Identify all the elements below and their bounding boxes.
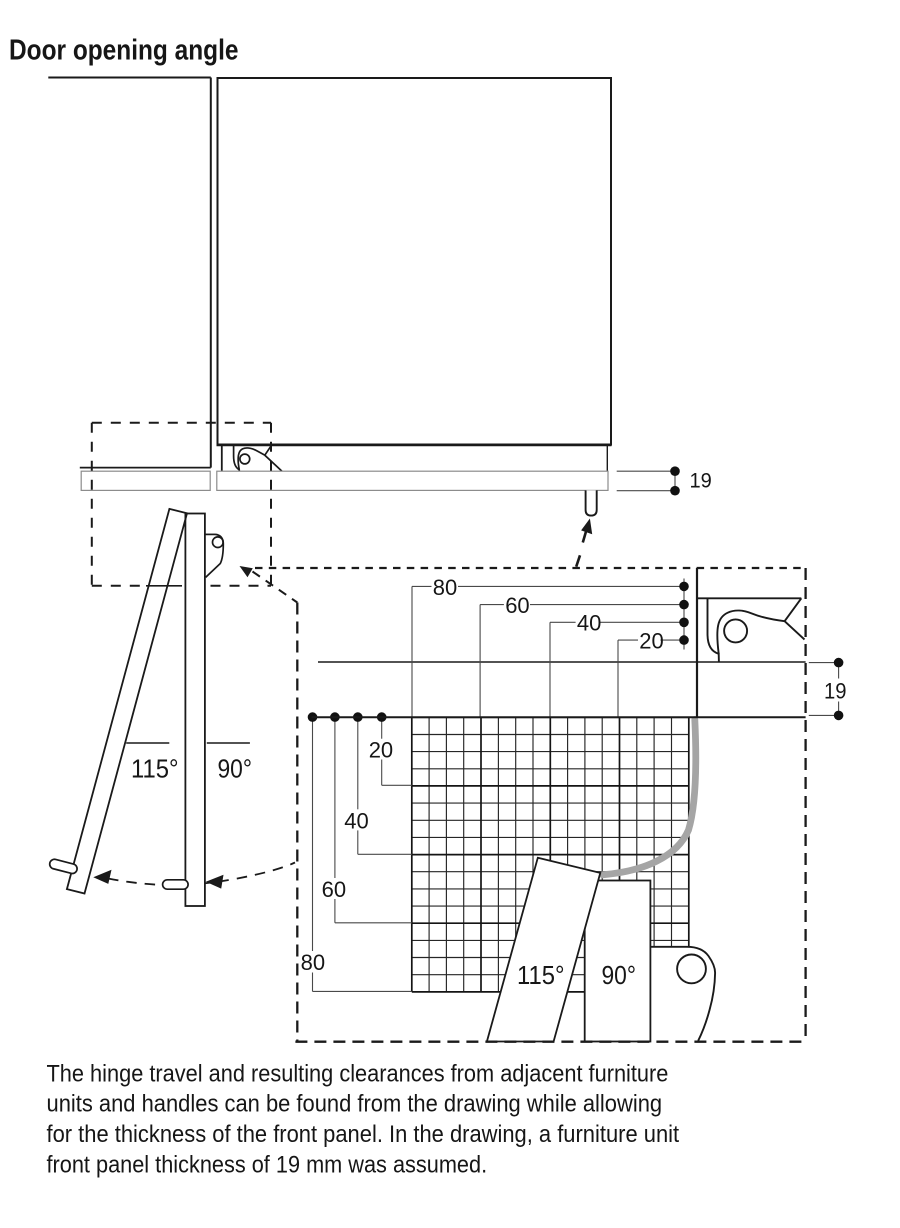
svg-text:60: 60 xyxy=(322,877,346,902)
svg-text:19: 19 xyxy=(690,469,712,492)
svg-text:80: 80 xyxy=(301,950,325,975)
svg-text:20: 20 xyxy=(639,629,663,654)
svg-text:front panel thickness of 19 mm: front panel thickness of 19 mm was assum… xyxy=(47,1151,488,1178)
svg-text:Door opening angle: Door opening angle xyxy=(9,34,239,66)
svg-text:90°: 90° xyxy=(602,960,637,990)
svg-text:40: 40 xyxy=(577,611,601,636)
svg-text:for the thickness of the front: for the thickness of the front panel. In… xyxy=(47,1121,680,1148)
svg-text:units and handles can be found: units and handles can be found from the … xyxy=(47,1091,663,1118)
svg-text:19: 19 xyxy=(824,678,847,703)
svg-text:60: 60 xyxy=(505,593,529,618)
svg-text:80: 80 xyxy=(433,575,457,600)
svg-text:90°: 90° xyxy=(218,754,253,784)
svg-text:115°: 115° xyxy=(517,960,565,990)
svg-text:The hinge travel and resulting: The hinge travel and resulting clearance… xyxy=(47,1060,669,1087)
svg-text:40: 40 xyxy=(344,808,368,833)
svg-text:115°: 115° xyxy=(131,754,179,784)
svg-text:20: 20 xyxy=(369,738,393,763)
